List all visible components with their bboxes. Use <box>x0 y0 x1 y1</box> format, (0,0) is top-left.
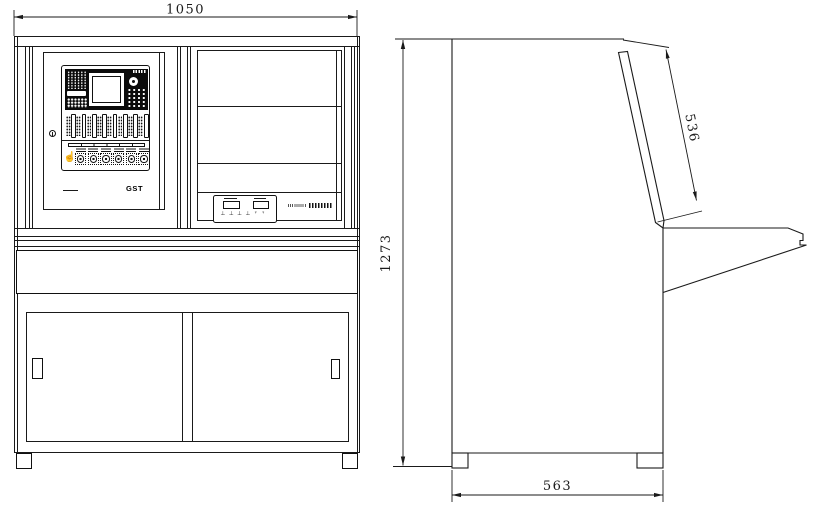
dim-1273-label: 1273 <box>379 233 394 272</box>
extension-line <box>658 211 703 222</box>
arrowhead <box>666 50 670 59</box>
arrowhead <box>654 493 663 497</box>
arrowhead <box>693 191 697 200</box>
arrowhead <box>452 493 461 497</box>
dim-563-label: 563 <box>543 479 572 494</box>
dim-1050-label: 1050 <box>166 3 205 18</box>
side-view-and-dimensions: 1050 1273 536 <box>0 0 814 512</box>
side-foot-left <box>452 453 468 468</box>
dim-1273-lines <box>393 39 452 467</box>
engineering-drawing-canvas: ☝ GST ⊥ ⊥ ⊥ ⊥ ♀ ♀ <box>0 0 814 512</box>
arrowhead <box>401 40 405 49</box>
arrowhead <box>401 457 405 466</box>
arrowhead <box>14 15 23 19</box>
side-view-outline <box>452 39 807 468</box>
arrowhead <box>348 15 357 19</box>
extension-line <box>623 40 669 48</box>
tilted-console-panel <box>619 52 665 229</box>
table-shelf-profile <box>663 228 807 293</box>
side-foot-right <box>637 453 663 468</box>
